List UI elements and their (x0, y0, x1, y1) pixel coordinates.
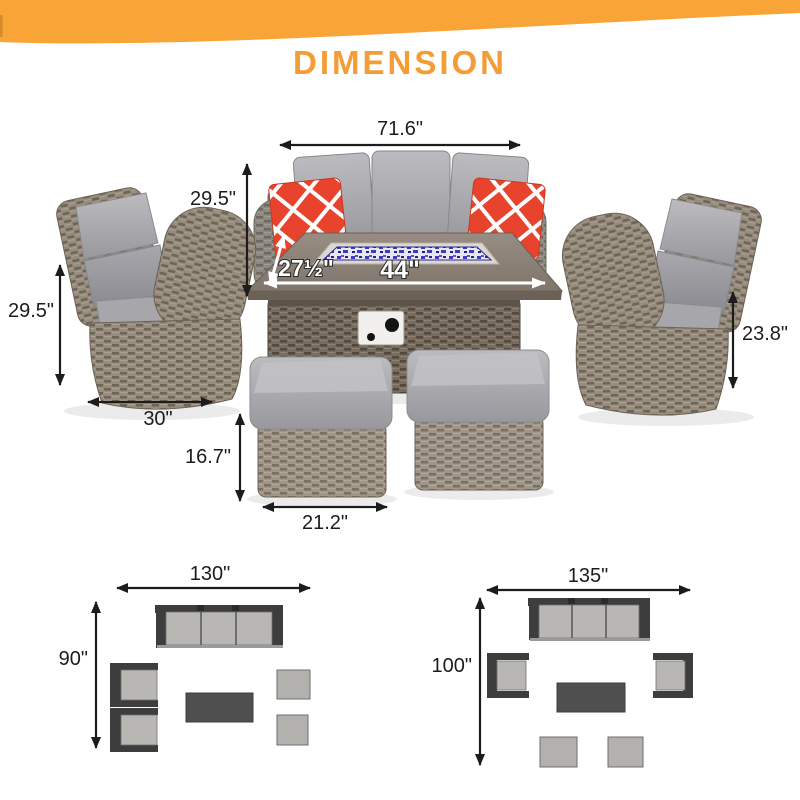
sofa-width-label: 71.6" (377, 118, 423, 140)
layout2-depth-label: 100" (432, 655, 472, 677)
ottoman-height-label: 16.7" (185, 446, 231, 468)
sofa-height-label: 29.5" (190, 188, 236, 210)
plan-ottoman (277, 715, 308, 745)
layout-diagrams: 130" 90" (0, 553, 800, 793)
plan-chair (110, 708, 158, 752)
ottoman-right (404, 350, 554, 500)
plan-chair (487, 653, 529, 698)
layout1-width-label: 130" (190, 563, 230, 585)
plan-chair (110, 663, 158, 707)
furniture-photo: 71.6" 29.5" 29.5" 30" 23.8" 16.7" 21.2" … (0, 95, 800, 555)
plan-chair (653, 653, 693, 698)
plan-ottoman (540, 737, 577, 767)
chair-height-label: 29.5" (8, 300, 54, 322)
top-wave-banner (0, 0, 800, 50)
layout-diagram-1: 130" 90" (59, 563, 310, 752)
control-knob (385, 318, 399, 332)
chair-width-label: 30" (143, 408, 172, 430)
page-title: DIMENSION (0, 44, 800, 82)
ottoman-left (247, 357, 397, 507)
table-depth-label: 27½" (278, 255, 334, 281)
plan-ottoman (277, 670, 310, 699)
table-width-label: 44" (380, 256, 420, 284)
plan-ottoman (608, 737, 643, 767)
plan-table (186, 693, 253, 722)
left-chair (54, 185, 263, 420)
layout1-depth-label: 90" (59, 648, 88, 670)
dimension-infographic: DIMENSION (0, 0, 800, 800)
plan-sofa (155, 605, 283, 648)
plan-sofa (528, 598, 650, 641)
plan-table (557, 683, 625, 712)
ignition-button (367, 333, 375, 341)
right-chair-height-label: 23.8" (742, 323, 788, 345)
layout-diagram-2: 135" 100" (432, 565, 693, 767)
ottoman-width-label: 21.2" (302, 512, 348, 534)
layout2-width-label: 135" (568, 565, 608, 587)
